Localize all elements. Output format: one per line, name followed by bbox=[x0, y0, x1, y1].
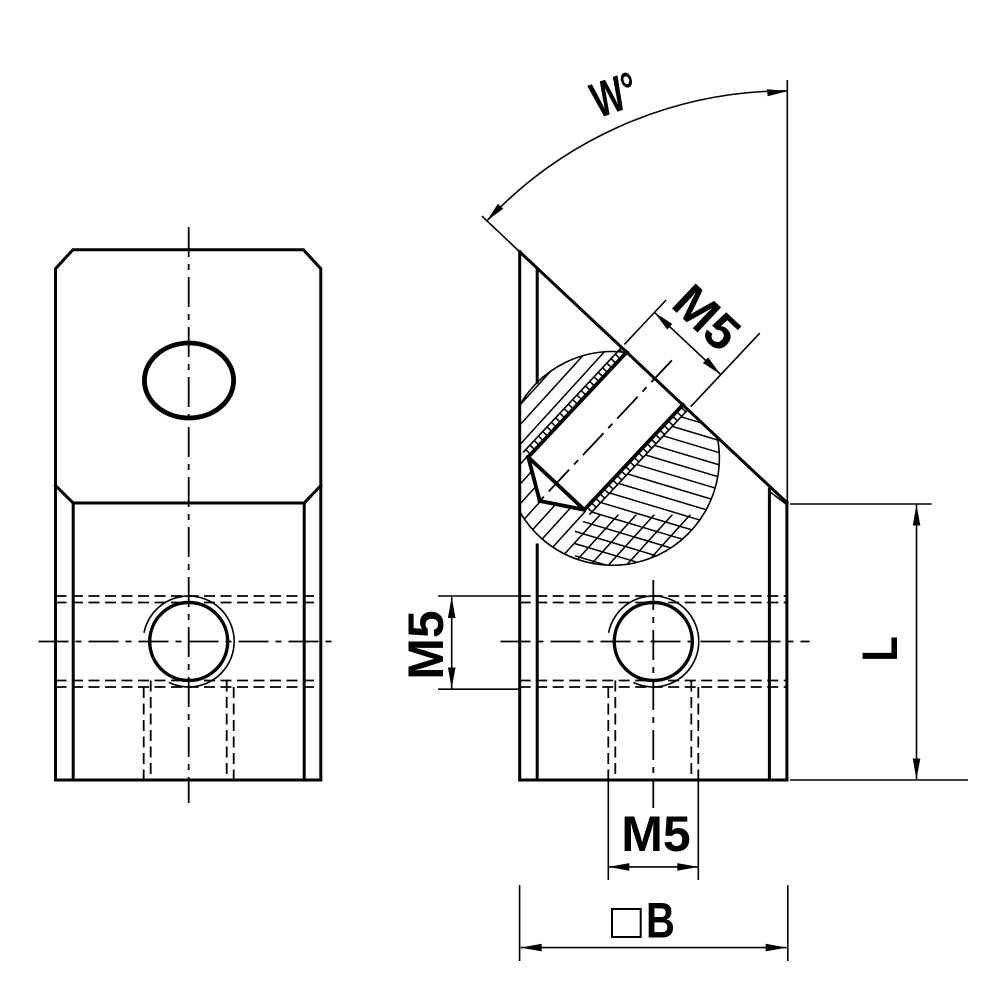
svg-text:M5: M5 bbox=[621, 806, 690, 862]
svg-text:L: L bbox=[851, 636, 908, 661]
svg-text:B: B bbox=[646, 892, 675, 948]
svg-text:M5: M5 bbox=[398, 610, 454, 679]
